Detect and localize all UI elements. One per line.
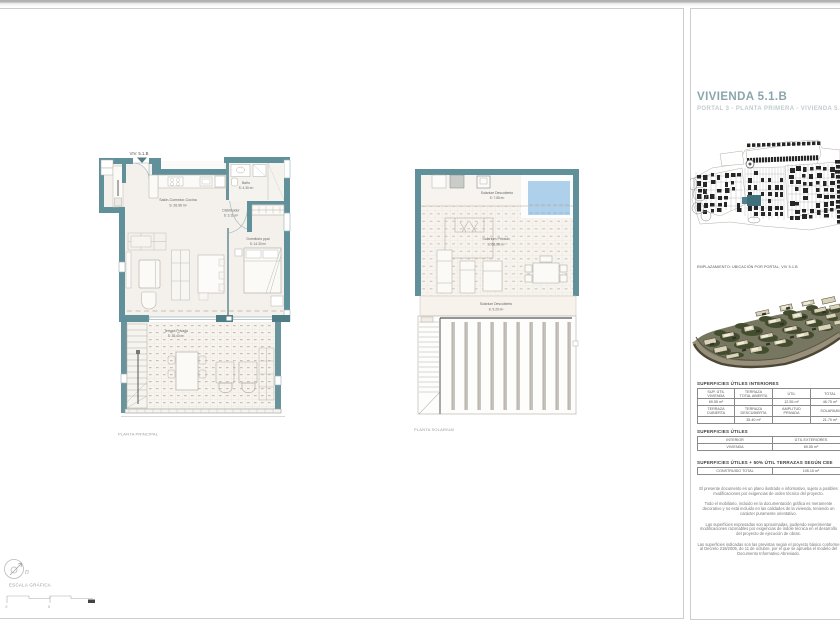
svg-text:Dormitorio ppal: Dormitorio ppal bbox=[247, 237, 270, 241]
svg-text:S: 68.96 m²: S: 68.96 m² bbox=[487, 243, 505, 247]
svg-text:Salón-Comedor-Cocina: Salón-Comedor-Cocina bbox=[159, 198, 197, 202]
svg-text:Solarium Privado: Solarium Privado bbox=[482, 237, 509, 241]
svg-text:Solarium Descubierto: Solarium Descubierto bbox=[480, 302, 513, 306]
svg-text:S: 3.11 m²: S: 3.11 m² bbox=[224, 214, 238, 218]
svg-text:n: n bbox=[25, 569, 29, 576]
svg-text:Baño: Baño bbox=[242, 181, 250, 185]
svg-text:Solarium Descubierto: Solarium Descubierto bbox=[481, 191, 514, 195]
svg-text:S: 9.20 m²: S: 9.20 m² bbox=[489, 308, 504, 312]
svg-text:S: 35.40 m²: S: 35.40 m² bbox=[168, 334, 184, 338]
svg-text:5: 5 bbox=[48, 605, 50, 609]
svg-text:S: 14.30 m²: S: 14.30 m² bbox=[250, 242, 266, 246]
svg-text:Distribuidor: Distribuidor bbox=[222, 209, 240, 213]
svg-text:0: 0 bbox=[6, 605, 8, 609]
svg-text:Terraza Privada: Terraza Privada bbox=[164, 329, 188, 333]
svg-text:PLANTA SOLARIUM: PLANTA SOLARIUM bbox=[414, 427, 454, 432]
svg-text:S: 7.65 m²: S: 7.65 m² bbox=[490, 196, 505, 200]
svg-text:ESCALA GRÁFICA: ESCALA GRÁFICA bbox=[9, 583, 51, 588]
svg-text:PLANTA PRINCIPAL: PLANTA PRINCIPAL bbox=[118, 432, 159, 437]
svg-text:S: 26.96 m²: S: 26.96 m² bbox=[169, 204, 187, 208]
svg-text:VIV. 5.1.B: VIV. 5.1.B bbox=[130, 151, 149, 156]
svg-text:S: 4.30 m²: S: 4.30 m² bbox=[239, 186, 254, 190]
